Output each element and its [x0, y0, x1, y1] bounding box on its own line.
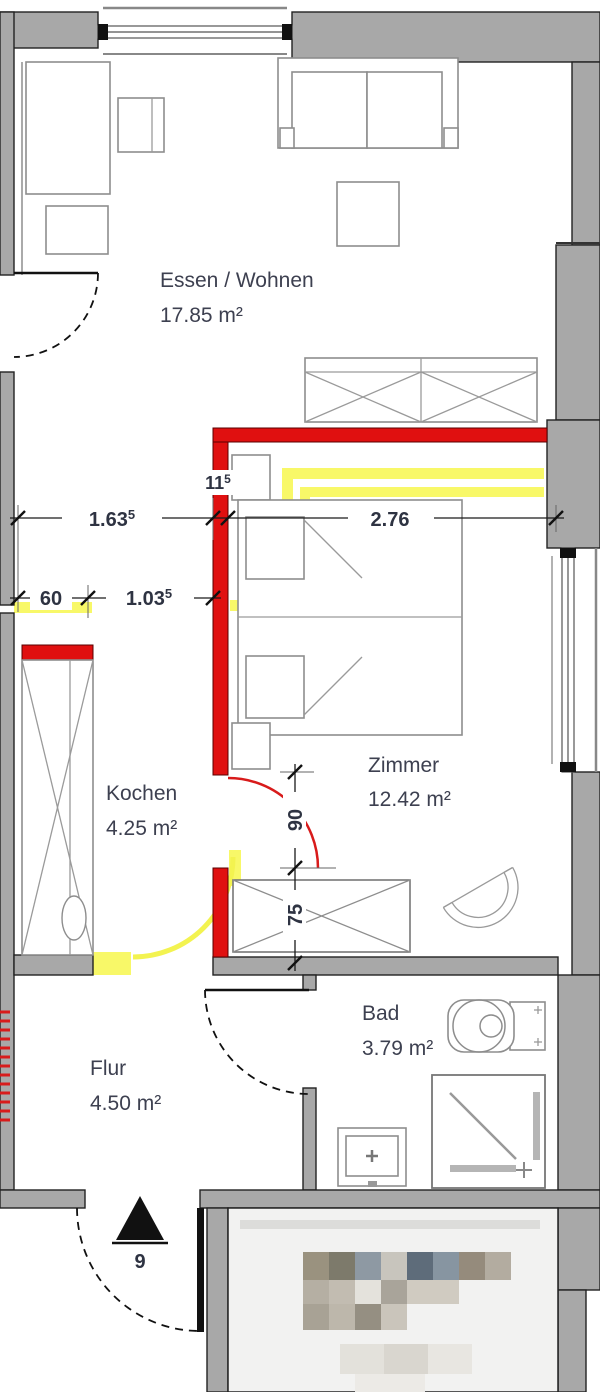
room-label-flur: Flur [90, 1057, 126, 1080]
room-area-flur: 4.50 m² [90, 1092, 161, 1115]
neighbour-room [228, 1208, 558, 1392]
fixtures-bath [338, 1000, 545, 1188]
chair [46, 206, 108, 254]
wardrobe [233, 880, 410, 952]
room-area-kochen: 4.25 m² [106, 817, 177, 840]
entrance-arrow-icon [112, 1196, 168, 1243]
dim-90: 90 [285, 809, 307, 831]
twin-beds [238, 500, 462, 735]
dim-75: 75 [285, 904, 307, 926]
nightstand [232, 723, 270, 769]
pillow [246, 656, 304, 718]
cabinet [26, 62, 110, 194]
sideboard [305, 358, 537, 422]
shower-icon [432, 1075, 545, 1188]
coffee-table [337, 182, 399, 246]
dim-60: 60 [40, 588, 62, 610]
door-living-left [14, 273, 98, 357]
side-table [118, 98, 164, 152]
room-area-essen-wohnen: 17.85 m² [160, 304, 243, 327]
room-label-kochen: Kochen [106, 782, 177, 805]
pillow [246, 517, 304, 579]
sofa [278, 58, 458, 148]
room-area-bad: 3.79 m² [362, 1037, 433, 1060]
window-top [98, 8, 292, 54]
furniture-kitchen [22, 660, 93, 955]
room-area-zimmer: 12.42 m² [368, 788, 451, 811]
room-label-essen-wohnen: Essen / Wohnen [160, 269, 314, 292]
washbasin-icon [338, 1128, 406, 1187]
toilet-icon [448, 1000, 545, 1052]
furniture-living [26, 58, 537, 422]
dim-276: 2.76 [371, 509, 410, 531]
tub-chair [443, 867, 532, 942]
kitchen-sink [62, 896, 86, 940]
entrance-number: 9 [134, 1251, 145, 1273]
window-right [552, 548, 596, 772]
floor-plan: 1.635 2.76 115 60 1.035 90 75 9 Essen / … [0, 0, 600, 1392]
door-bath [205, 990, 309, 1094]
room-label-zimmer: Zimmer [368, 754, 439, 777]
room-label-bad: Bad [362, 1002, 399, 1025]
